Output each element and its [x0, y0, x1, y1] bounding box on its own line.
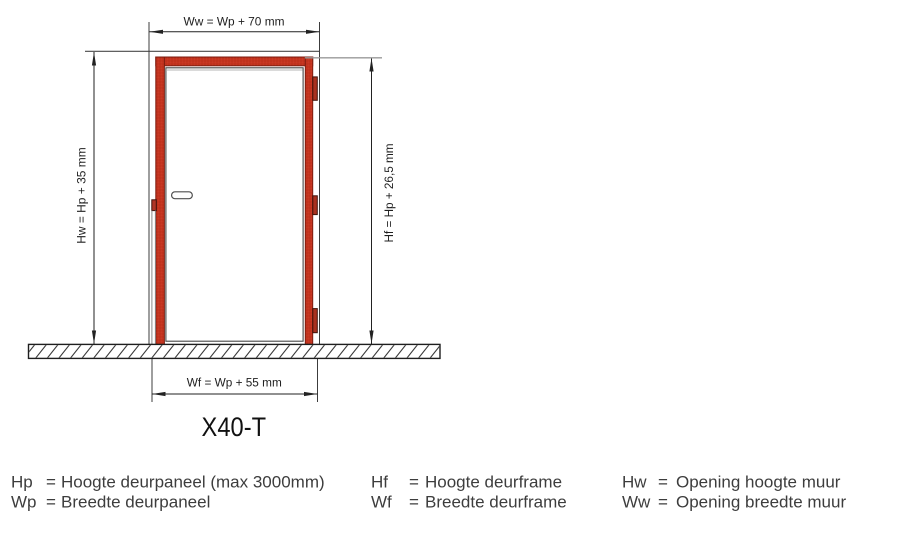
svg-text:Hoogte deurframe: Hoogte deurframe — [425, 473, 562, 492]
svg-text:Hoogte deurpaneel (max 3000mm): Hoogte deurpaneel (max 3000mm) — [61, 473, 325, 492]
svg-text:=: = — [658, 493, 668, 512]
svg-text:Breedte deurframe: Breedte deurframe — [425, 493, 567, 512]
svg-text:Hw: Hw — [622, 473, 647, 492]
svg-text:=: = — [46, 493, 56, 512]
svg-text:=: = — [409, 473, 419, 492]
svg-text:Hp: Hp — [11, 473, 33, 492]
svg-text:=: = — [409, 493, 419, 512]
svg-text:Breedte deurpaneel: Breedte deurpaneel — [61, 493, 210, 512]
svg-text:X40-T: X40-T — [202, 412, 267, 442]
svg-text:Ww: Ww — [622, 493, 651, 512]
svg-text:Ww = Wp + 70 mm: Ww = Wp + 70 mm — [184, 17, 285, 29]
svg-text:=: = — [46, 473, 56, 492]
svg-text:Hf: Hf — [371, 473, 388, 492]
svg-text:Wp: Wp — [11, 493, 37, 512]
svg-text:=: = — [658, 473, 668, 492]
svg-text:Opening breedte muur: Opening breedte muur — [676, 493, 846, 512]
svg-text:Hf = Hp + 26,5 mm: Hf = Hp + 26,5 mm — [384, 144, 396, 243]
svg-text:Opening hoogte muur: Opening hoogte muur — [676, 473, 841, 492]
svg-text:Wf = Wp + 55 mm: Wf = Wp + 55 mm — [187, 378, 282, 390]
svg-text:Wf: Wf — [371, 493, 392, 512]
svg-text:Hw = Hp + 35 mm: Hw = Hp + 35 mm — [77, 147, 89, 244]
